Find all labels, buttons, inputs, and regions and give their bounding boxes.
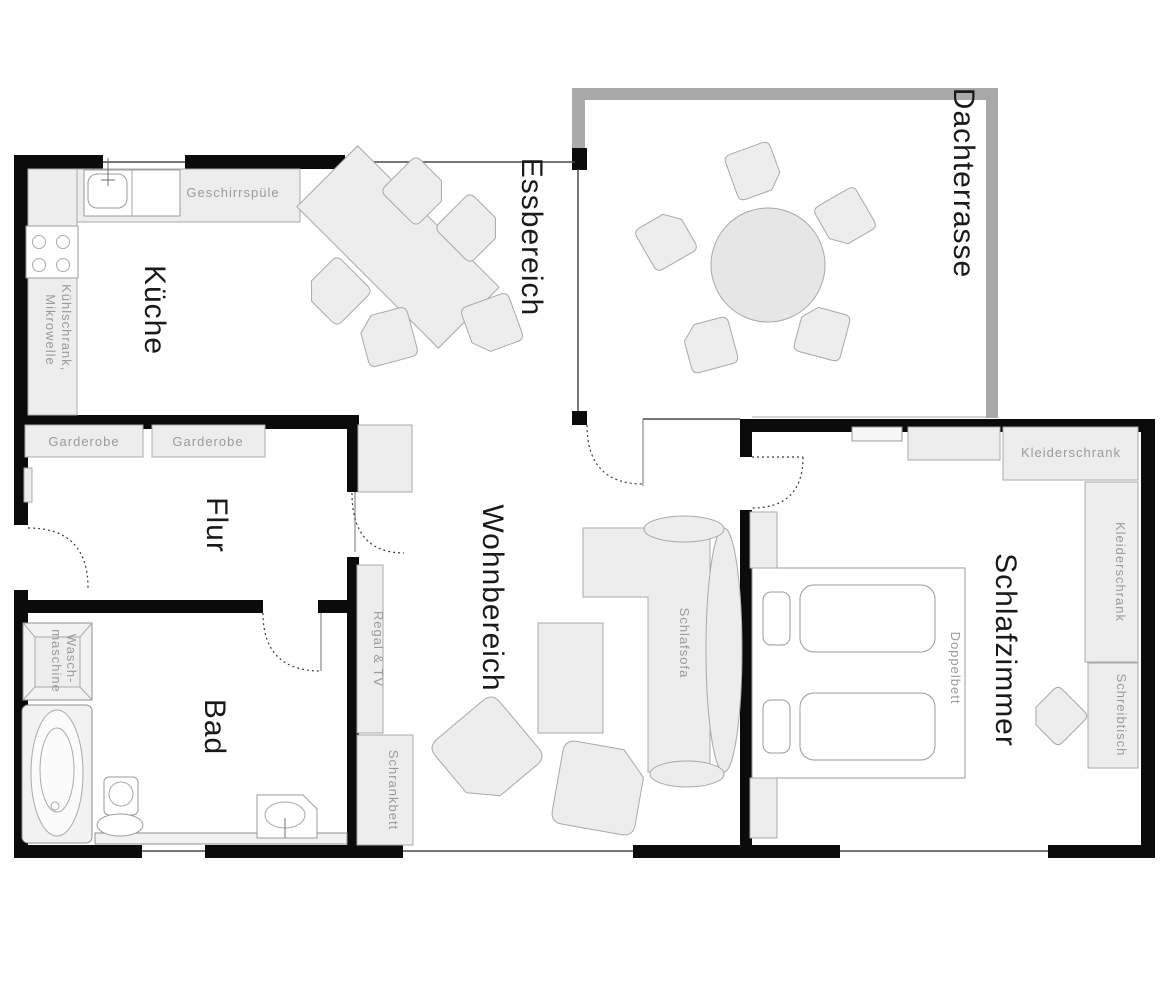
stove — [26, 226, 78, 278]
room-label-kitchen: Küche — [138, 265, 171, 355]
closet — [908, 427, 1000, 460]
dining-area: Essbereich — [297, 146, 548, 368]
terrace-door-swing — [587, 425, 643, 484]
wardrobe-top-label: Kleiderschrank — [1021, 445, 1121, 460]
terrace-chair — [812, 185, 877, 250]
wall-bed — [357, 735, 413, 845]
desk-chair — [1027, 685, 1089, 747]
terrace-chair — [633, 207, 698, 272]
floor-plan: Geschirrspüle Kühlschrank, Mikrowelle Kü… — [0, 0, 1163, 1003]
wall-segment — [185, 155, 345, 169]
entrance-door-swing — [28, 528, 88, 588]
desk-label: Schreibtisch — [1114, 674, 1129, 757]
nightstand — [750, 512, 777, 568]
room-label-bedroom: Schlafzimmer — [989, 553, 1022, 747]
pillow — [763, 592, 790, 645]
wall-segment — [347, 415, 359, 492]
wall-segment — [633, 845, 840, 858]
sleeper-sofa-armrest — [644, 516, 724, 542]
fridge-microwave-label: Kühlschrank, Mikrowelle — [43, 284, 74, 376]
bathtub-basin — [31, 710, 83, 836]
wardrobe-label: Garderobe — [172, 434, 243, 449]
terrace-chair — [723, 140, 784, 201]
terrace-chair — [793, 304, 851, 362]
mattress — [800, 585, 935, 652]
wardrobe-side-label: Kleiderschrank — [1113, 522, 1128, 622]
wall-post — [572, 411, 587, 425]
wardrobe-side — [1085, 482, 1138, 662]
shelf-tv-label: Regal & TV — [371, 611, 386, 687]
nightstand — [750, 778, 777, 838]
sleeper-sofa-backrest — [706, 528, 742, 772]
room-label-terrace: Dachterrasse — [947, 88, 980, 278]
bathroom: Wasch- maschine Bad — [22, 623, 347, 844]
roof-terrace: Dachterrasse — [633, 88, 980, 374]
terrace-chair — [681, 316, 739, 374]
desk — [1088, 663, 1138, 768]
terrace-wall-right — [986, 88, 998, 418]
wall-segment — [205, 845, 403, 858]
entry-cabinet — [358, 425, 412, 492]
coffee-table — [538, 623, 603, 733]
room-label-living: Wohnbereich — [476, 504, 509, 691]
kitchen: Geschirrspüle Kühlschrank, Mikrowelle Kü… — [26, 158, 300, 415]
wall-segment — [1048, 845, 1155, 858]
bedroom: Doppelbett Kleiderschrank Kleiderschrank… — [750, 427, 1138, 838]
washing-machine-label: Wasch- maschine — [49, 629, 79, 693]
wardrobe-label: Garderobe — [48, 434, 119, 449]
mattress — [800, 693, 935, 760]
pillow — [763, 700, 790, 753]
lounge-chair — [428, 693, 546, 811]
washer-label-line2: maschine — [49, 629, 64, 693]
toilet-bowl — [97, 814, 143, 836]
room-label-bathroom: Bad — [198, 699, 231, 755]
washbasin — [257, 795, 317, 838]
room-label-hall: Flur — [200, 497, 233, 553]
lounge-chair — [550, 739, 647, 836]
entrance-door-panel — [24, 468, 32, 502]
sleeper-sofa-label: Schlafsofa — [677, 608, 692, 679]
wall-segment — [14, 845, 142, 858]
fridge-label-line1: Kühlschrank, — [59, 284, 74, 371]
fridge-label-line2: Mikrowelle — [43, 294, 58, 365]
terrace-table — [711, 208, 825, 322]
wall-shelf — [852, 427, 902, 441]
double-bed-label: Doppelbett — [948, 632, 963, 705]
terrace-wall-top — [578, 88, 998, 100]
wall-bed-label: Schrankbett — [386, 750, 401, 830]
living-area: Schlafsofa Regal & TV Schrankbett Wohnbe… — [357, 425, 742, 845]
bath-door-swing — [263, 613, 321, 671]
sleeper-sofa-armrest — [650, 761, 724, 787]
wall-segment — [14, 600, 263, 613]
wall-segment — [740, 419, 752, 457]
bedroom-door-swing — [752, 457, 803, 508]
wall-post — [572, 148, 587, 170]
wall-segment — [1141, 419, 1155, 858]
hall-door-swing — [352, 493, 404, 553]
hall: Garderobe Garderobe Flur — [25, 425, 265, 553]
room-label-dining: Essbereich — [515, 158, 548, 316]
terrace-wall-left-stub — [572, 88, 585, 150]
washer-label-line1: Wasch- — [64, 634, 79, 684]
sink-label: Geschirrspüle — [186, 185, 279, 200]
wall-segment — [318, 600, 359, 613]
